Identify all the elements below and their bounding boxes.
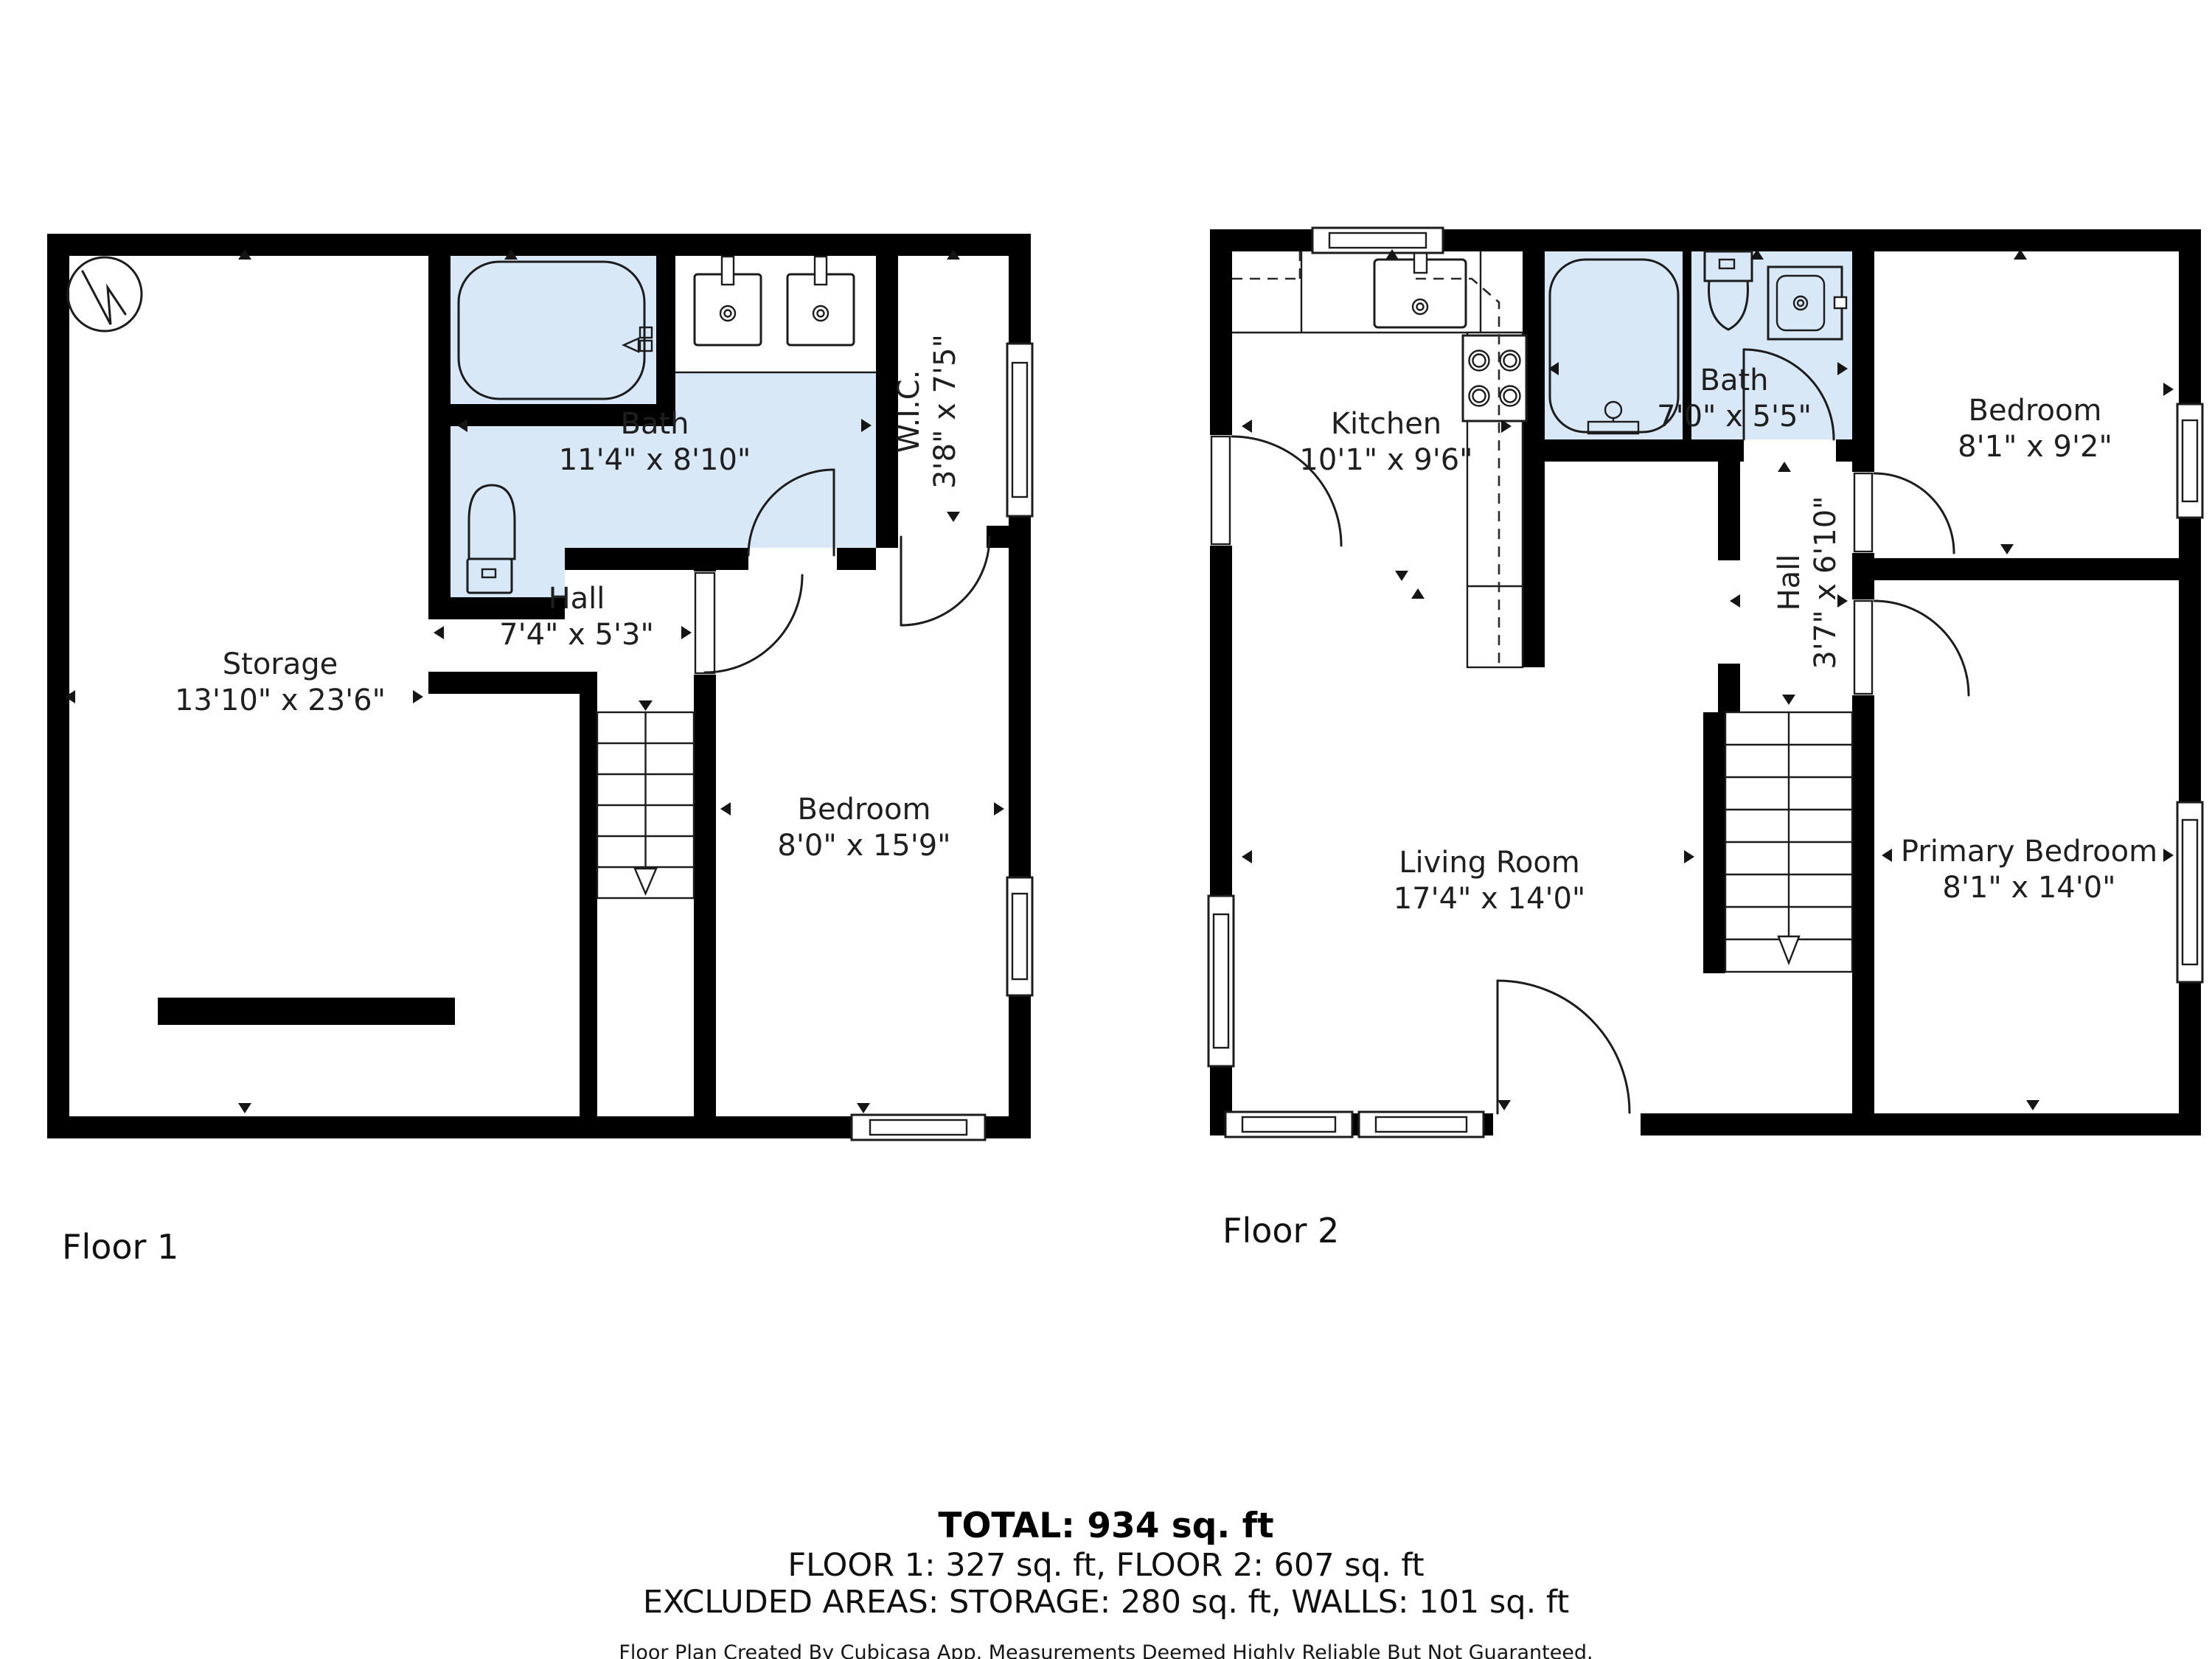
- window: [1007, 877, 1032, 995]
- room-label-bedroom1: Bedroom 8'0" x 15'9": [777, 792, 950, 864]
- summary-block: TOTAL: 934 sq. ft FLOOR 1: 327 sq. ft, F…: [0, 1506, 2212, 1659]
- room-name: Living Room: [1394, 845, 1586, 881]
- room-dims: 17'4" x 14'0": [1394, 881, 1586, 917]
- floorplan-page: Storage 13'10" x 23'6" Bath 11'4" x 8'10…: [0, 0, 2212, 1659]
- room-dims: 8'1" x 14'0": [1901, 870, 2157, 906]
- door-arc: [695, 573, 802, 673]
- window: [1225, 1112, 1352, 1137]
- room-dims: 11'4" x 8'10": [559, 442, 751, 479]
- room-name: Kitchen: [1299, 406, 1472, 442]
- floorplan-drawing: [0, 0, 2212, 1659]
- window: [1208, 896, 1234, 1066]
- door-arc: [1854, 473, 1954, 553]
- room-label-hall1: Hall 7'4" x 5'3": [499, 581, 654, 653]
- room-label-bath1: Bath 11'4" x 8'10": [559, 406, 751, 479]
- window: [2177, 802, 2202, 982]
- window: [1312, 228, 1443, 253]
- room-dims: 8'0" x 15'9": [777, 828, 950, 864]
- room-dims: 8'1" x 9'2": [1958, 429, 2112, 465]
- room-label-wic: W.I.C. 3'8" x 7'5": [891, 334, 964, 489]
- room-dims: 10'1" x 9'6": [1299, 442, 1472, 479]
- door-arc: [898, 526, 990, 625]
- door-arc: [1493, 981, 1641, 1135]
- room-label-bath2: Bath 7'0" x 5'5": [1657, 363, 1812, 435]
- summary-floors: FLOOR 1: 327 sq. ft, FLOOR 2: 607 sq. ft: [0, 1547, 2212, 1584]
- room-dims: 3'8" x 7'5": [928, 334, 964, 489]
- summary-total: TOTAL: 934 sq. ft: [0, 1506, 2212, 1547]
- stairs-down: [1725, 695, 1852, 972]
- room-name: Bedroom: [1958, 393, 2112, 429]
- window: [852, 1115, 985, 1140]
- door-arc: [1854, 601, 1969, 695]
- room-dims: 3'7" x 6'10": [1808, 495, 1844, 669]
- compass-icon: [68, 257, 142, 331]
- room-dims: 7'4" x 5'3": [499, 617, 654, 653]
- room-dims: 13'10" x 23'6": [175, 683, 386, 719]
- room-label-hall2: Hall 3'7" x 6'10": [1772, 495, 1844, 669]
- room-name: Primary Bedroom: [1901, 834, 2157, 870]
- room-label-bedroom2: Bedroom 8'1" x 9'2": [1958, 393, 2112, 465]
- room-name: Bedroom: [777, 792, 950, 828]
- window: [1359, 1112, 1484, 1137]
- window: [2177, 404, 2202, 518]
- room-label-living: Living Room 17'4" x 14'0": [1394, 845, 1586, 917]
- summary-excluded: EXCLUDED AREAS: STORAGE: 280 sq. ft, WAL…: [0, 1584, 2212, 1621]
- room-name: W.I.C.: [891, 334, 928, 489]
- window: [1007, 344, 1032, 516]
- stairs-down: [597, 700, 694, 898]
- bath1-vanity: [675, 256, 876, 372]
- room-dims: 7'0" x 5'5": [1657, 399, 1812, 435]
- room-name: Bath: [559, 406, 751, 442]
- room-name: Storage: [175, 647, 386, 683]
- floor1-caption: Floor 1: [62, 1227, 178, 1267]
- room-label-primary: Primary Bedroom 8'1" x 14'0": [1901, 834, 2157, 906]
- room-name: Bath: [1657, 363, 1812, 399]
- summary-disclaimer: Floor Plan Created By Cubicasa App. Meas…: [0, 1641, 2212, 1659]
- room-label-kitchen: Kitchen 10'1" x 9'6": [1299, 406, 1472, 479]
- storage-partition-wall: [158, 998, 455, 1025]
- room-name: Hall: [1772, 495, 1808, 669]
- room-name: Hall: [499, 581, 654, 617]
- floor2-caption: Floor 2: [1222, 1211, 1339, 1251]
- room-label-storage: Storage 13'10" x 23'6": [175, 647, 386, 719]
